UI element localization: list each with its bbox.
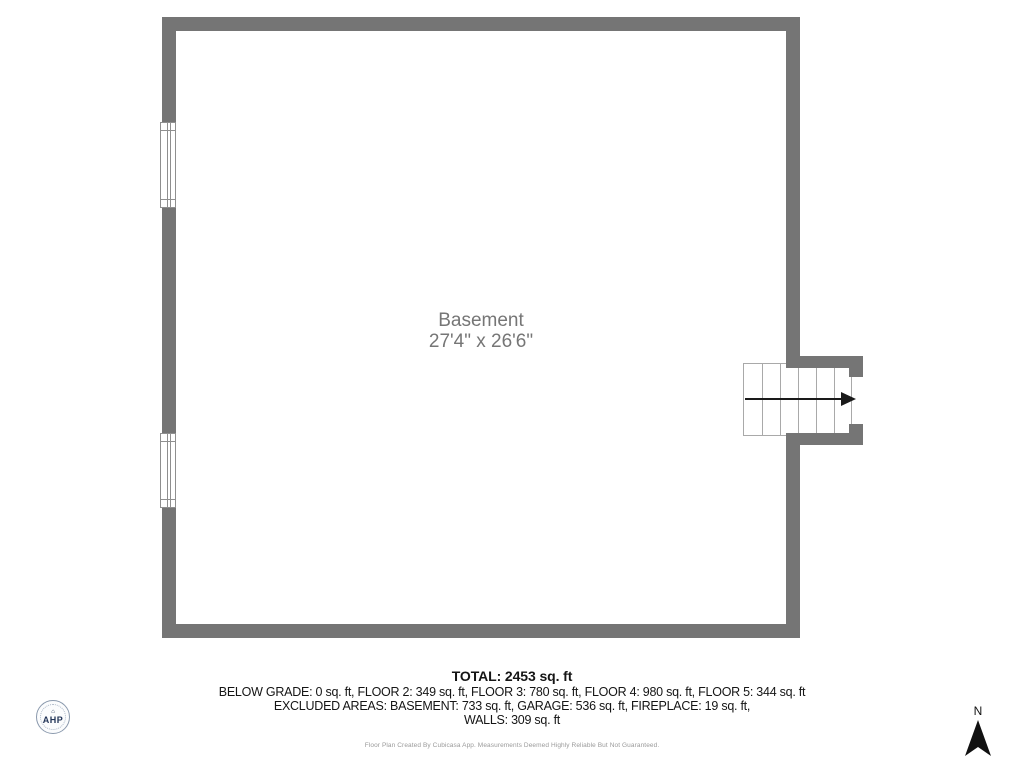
wall-stair-nook-stub-top (849, 368, 863, 377)
stair-direction-arrow (745, 398, 843, 400)
window-frame-tick (161, 130, 175, 131)
wall-right-lower (786, 445, 800, 638)
wall-top (162, 17, 800, 31)
wall-stair-nook-stub-bottom (849, 424, 863, 433)
window-frame-tick (161, 441, 175, 442)
window-frame-tick (161, 499, 175, 500)
wall-left-upper (162, 17, 176, 122)
wall-stair-nook-bottom (786, 433, 863, 445)
walls-area-text: WALLS: 309 sq. ft (0, 713, 1024, 727)
wall-left-lower (162, 508, 176, 638)
window-frame-tick (161, 199, 175, 200)
seal-text-ring (40, 704, 66, 730)
excluded-areas-text: EXCLUDED AREAS: BASEMENT: 733 sq. ft, GA… (0, 699, 1024, 713)
wall-bottom (162, 624, 800, 638)
room-name: Basement (162, 310, 800, 331)
floor-plan-page: Basement 27'4" x 26'6" TOTAL: 2453 sq. f… (0, 0, 1024, 768)
room-dimensions: 27'4" x 26'6" (162, 331, 800, 352)
wall-right-upper (786, 17, 800, 356)
north-arrow-icon (962, 720, 994, 758)
room-label-group: Basement 27'4" x 26'6" (162, 310, 800, 352)
window (160, 433, 176, 508)
window-pane-lines (167, 434, 171, 507)
total-area-text: TOTAL: 2453 sq. ft (0, 668, 1024, 685)
north-label: N (962, 704, 994, 718)
window (160, 122, 176, 208)
ahp-seal-logo: ⌂ AHP (36, 700, 70, 734)
wall-stair-nook-top (786, 356, 863, 368)
stair-arrow-head-icon (841, 392, 856, 406)
floor-areas-text: BELOW GRADE: 0 sq. ft, FLOOR 2: 349 sq. … (0, 685, 1024, 699)
window-pane-lines (167, 123, 171, 207)
area-summary: TOTAL: 2453 sq. ft BELOW GRADE: 0 sq. ft… (0, 668, 1024, 727)
disclaimer-text: Floor Plan Created By Cubicasa App. Meas… (0, 742, 1024, 749)
